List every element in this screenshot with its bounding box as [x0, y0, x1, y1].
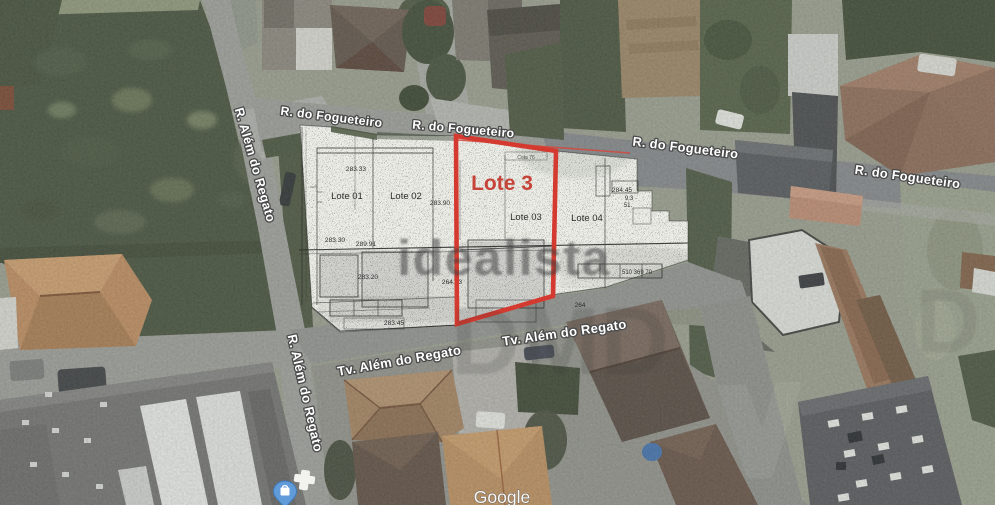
svg-text:Google: Google — [474, 487, 530, 505]
svg-text:D: D — [916, 272, 981, 372]
svg-text:DMD: DMD — [451, 288, 670, 395]
svg-text:idealista: idealista — [397, 230, 611, 286]
